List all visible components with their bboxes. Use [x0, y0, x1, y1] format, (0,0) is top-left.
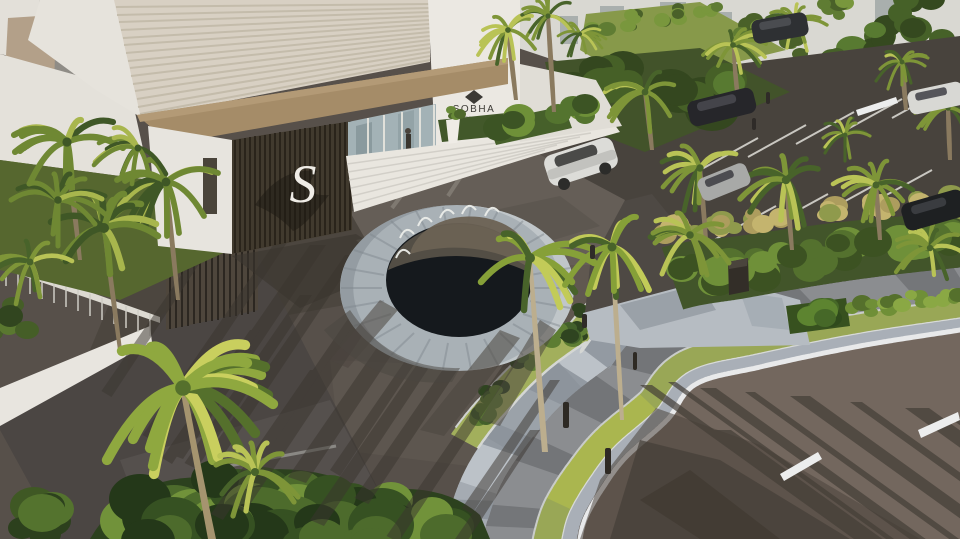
svg-text:S: S [290, 154, 317, 214]
